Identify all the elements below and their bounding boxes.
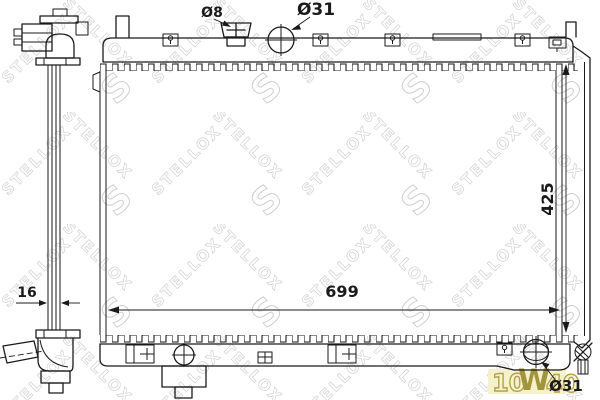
dia31-top-label: Ø31 [297, 0, 335, 20]
dia31-bottom-label: Ø31 [549, 377, 583, 395]
top-fin-row [100, 62, 578, 71]
radiator-technical-drawing: STELLOX STELLOX S 10 W 40 [0, 0, 600, 400]
height-dimension-label: 425 [538, 182, 557, 215]
drawing-canvas: STELLOX STELLOX S 10 W 40 [0, 0, 600, 400]
width-dimension-label: 699 [325, 282, 358, 301]
dia8-label: Ø8 [201, 5, 223, 21]
thickness-dimension-label: 16 [17, 285, 36, 301]
